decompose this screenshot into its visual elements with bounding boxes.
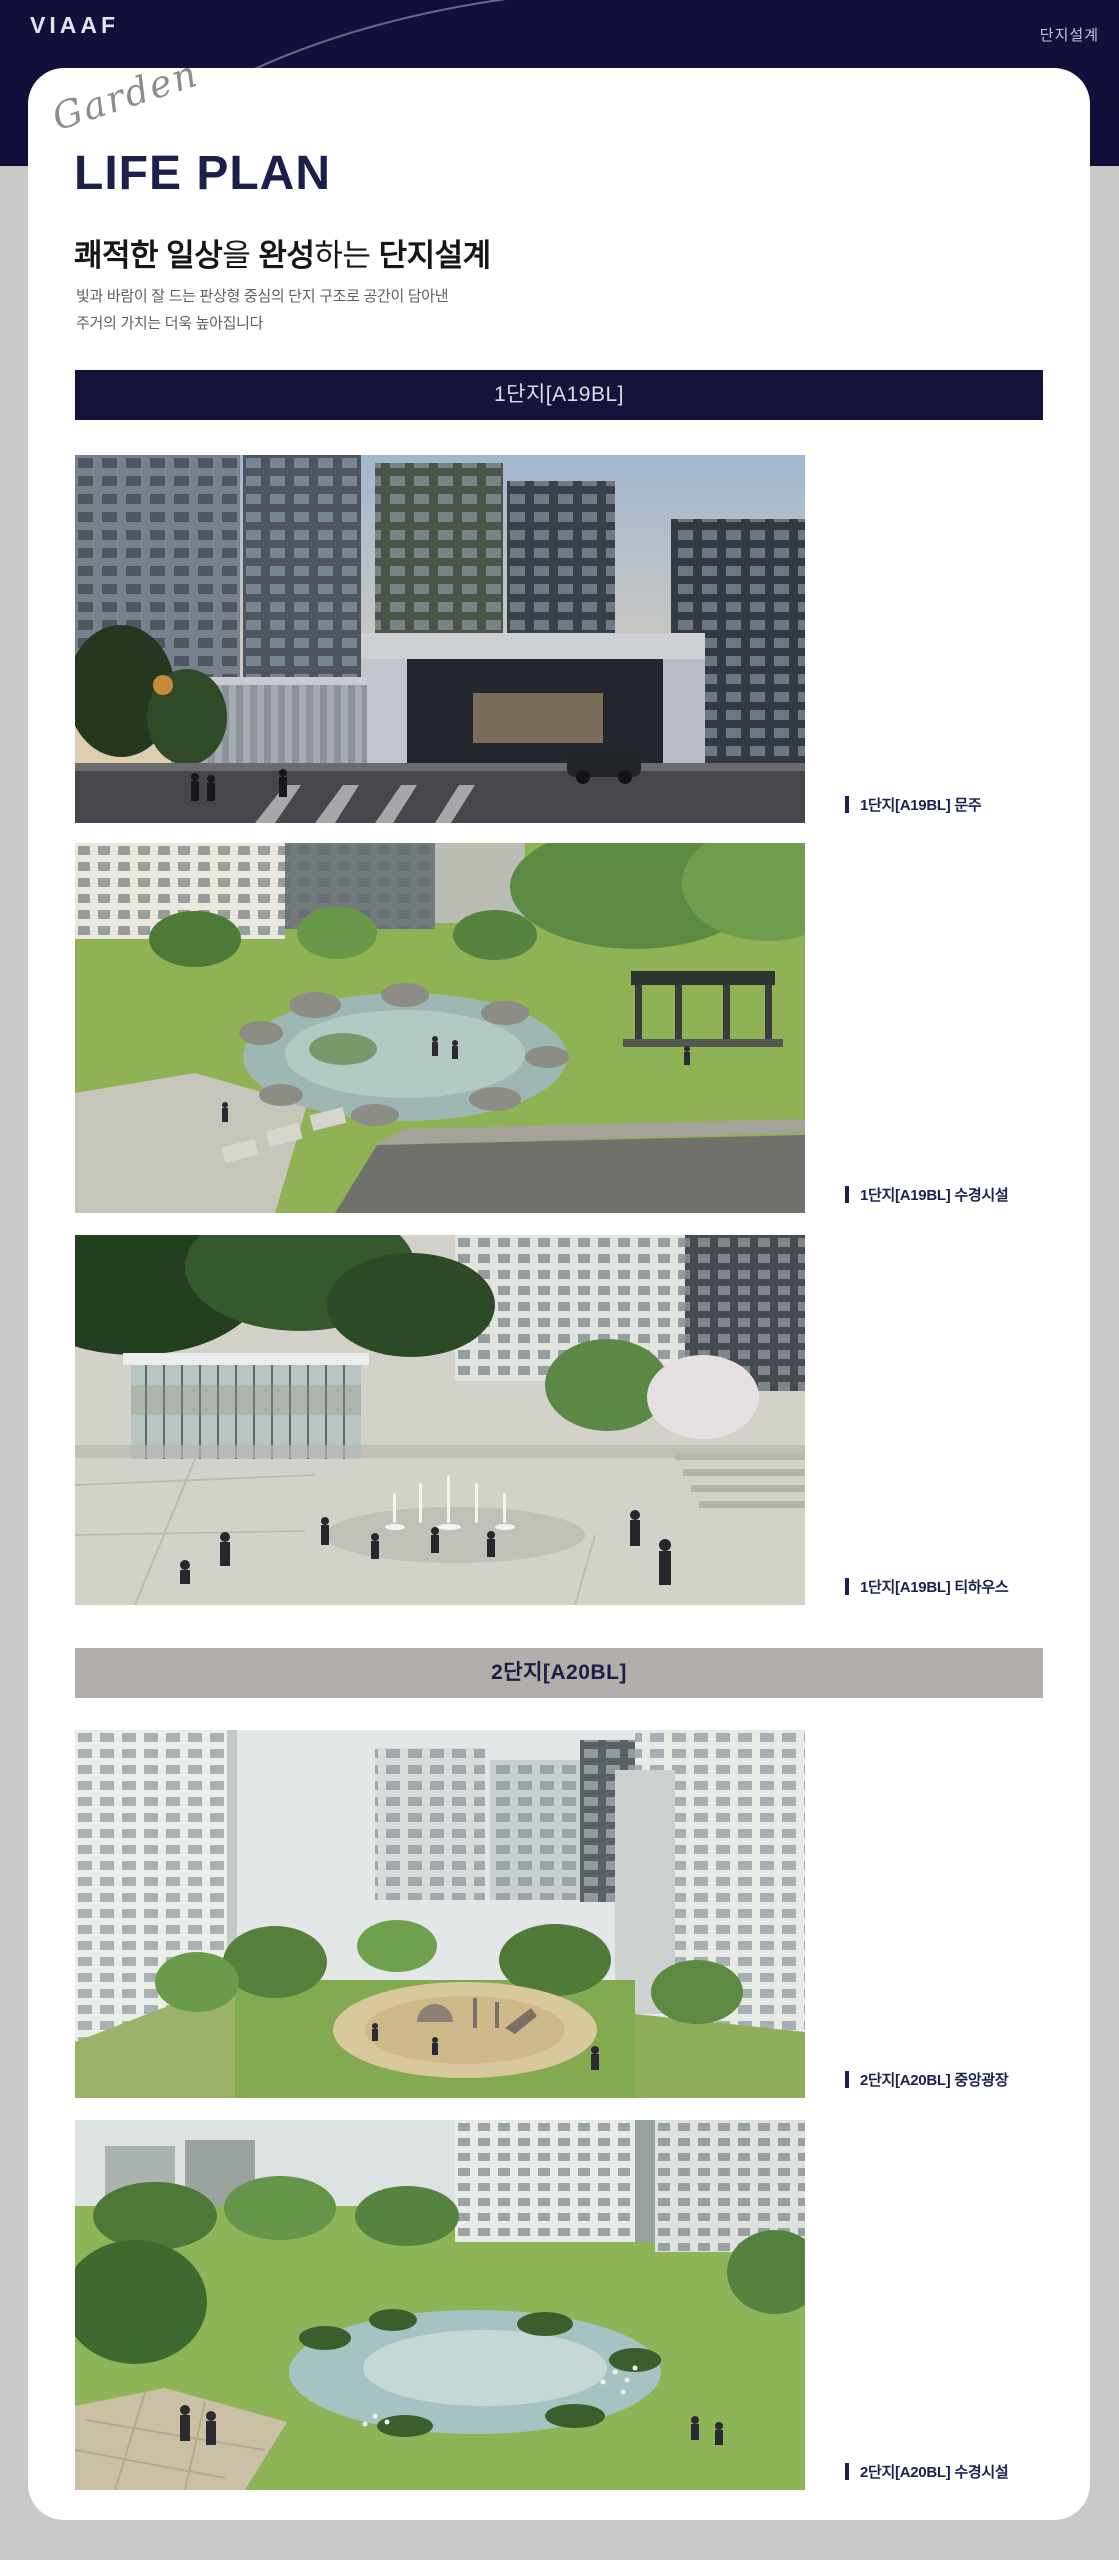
- figure-row-gate: 1단지[A19BL] 문주: [75, 455, 1043, 823]
- caption-text: 2단지[A20BL] 수경시설: [860, 2461, 1008, 2482]
- section-banner-1danji: 1단지[A19BL]: [75, 370, 1043, 420]
- figure-row-central-plaza: 2단지[A20BL] 중앙광장: [75, 1730, 1043, 2098]
- render-gate-image: [75, 455, 805, 823]
- figure-row-teahouse: 1단지[A19BL] 티하우스: [75, 1235, 1043, 1605]
- figure-row-pond2: 2단지[A20BL] 수경시설: [75, 2120, 1043, 2490]
- description-line-1: 빛과 바람이 잘 드는 판상형 중심의 단지 구조로 공간이 담아낸: [76, 283, 448, 310]
- content-card: Garden LIFE PLAN 쾌적한 일상을 완성하는 단지설계 빛과 바람…: [28, 68, 1090, 2520]
- nav-label-danji[interactable]: 단지설계: [1040, 24, 1099, 45]
- caption-bar-icon: [845, 2071, 849, 2088]
- section-banner-2danji: 2단지[A20BL]: [75, 1648, 1043, 1698]
- render-water-feature-1-image: [75, 843, 805, 1213]
- caption-text: 1단지[A19BL] 수경시설: [860, 1184, 1008, 1205]
- hero-subtitle: 쾌적한 일상을 완성하는 단지설계: [74, 230, 491, 275]
- caption-bar-icon: [845, 796, 849, 813]
- render-teahouse-image: [75, 1235, 805, 1605]
- subtitle-seg-1: 쾌적한 일상: [74, 238, 222, 273]
- render-water-feature-2-image: [75, 2120, 805, 2490]
- figure-caption: 1단지[A19BL] 티하우스: [845, 1576, 1008, 1597]
- figure-caption: 1단지[A19BL] 문주: [845, 794, 981, 815]
- subtitle-seg-2: 을: [222, 238, 258, 273]
- figure-caption: 1단지[A19BL] 수경시설: [845, 1184, 1008, 1205]
- caption-bar-icon: [845, 2463, 849, 2480]
- hero-description: 빛과 바람이 잘 드는 판상형 중심의 단지 구조로 공간이 담아낸 주거의 가…: [76, 283, 448, 337]
- figure-caption: 2단지[A20BL] 중앙광장: [845, 2069, 1008, 2090]
- page-title: LIFE PLAN: [74, 146, 331, 201]
- figure-caption: 2단지[A20BL] 수경시설: [845, 2461, 1008, 2482]
- subtitle-seg-3: 완성: [258, 238, 314, 273]
- caption-text: 2단지[A20BL] 중앙광장: [860, 2069, 1008, 2090]
- viaaf-logo: VIAAF: [30, 12, 119, 39]
- subtitle-seg-4: 하는: [314, 238, 378, 273]
- subtitle-seg-5: 단지설계: [379, 238, 491, 273]
- render-central-plaza-image: [75, 1730, 805, 2098]
- caption-text: 1단지[A19BL] 문주: [860, 794, 981, 815]
- caption-bar-icon: [845, 1578, 849, 1595]
- caption-text: 1단지[A19BL] 티하우스: [860, 1576, 1008, 1597]
- description-line-2: 주거의 가치는 더욱 높아집니다: [76, 310, 448, 337]
- figure-row-pond1: 1단지[A19BL] 수경시설: [75, 843, 1043, 1213]
- caption-bar-icon: [845, 1186, 849, 1203]
- hero-section: Garden LIFE PLAN 쾌적한 일상을 완성하는 단지설계 빛과 바람…: [28, 68, 1090, 370]
